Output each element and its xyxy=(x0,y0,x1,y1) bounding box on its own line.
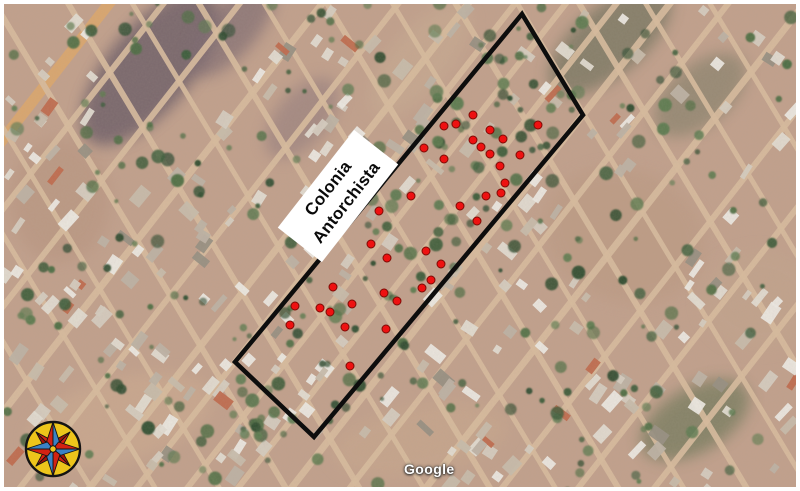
marker-dot xyxy=(326,308,334,316)
map-figure: Colonia Antorchista Google xyxy=(0,0,800,491)
marker-dot xyxy=(456,202,464,210)
google-attribution: Google xyxy=(404,461,455,477)
marker-dot xyxy=(486,150,494,158)
marker-dot xyxy=(534,121,542,129)
marker-dot xyxy=(382,325,390,333)
marker-dot xyxy=(375,207,383,215)
marker-dot xyxy=(420,144,428,152)
marker-dot xyxy=(477,143,485,151)
marker-dot xyxy=(497,189,505,197)
marker-dot xyxy=(422,247,430,255)
satellite-imagery xyxy=(4,4,796,487)
marker-dot xyxy=(407,192,415,200)
marker-dot xyxy=(380,289,388,297)
marker-dot xyxy=(348,300,356,308)
marker-dot xyxy=(316,304,324,312)
marker-dot xyxy=(486,126,494,134)
marker-dot xyxy=(501,179,509,187)
marker-dot xyxy=(427,276,435,284)
marker-dot xyxy=(452,120,460,128)
marker-dot xyxy=(440,122,448,130)
marker-dot xyxy=(469,136,477,144)
marker-dot xyxy=(499,135,507,143)
marker-dot xyxy=(473,217,481,225)
marker-dot xyxy=(286,321,294,329)
marker-dot xyxy=(482,192,490,200)
marker-dot xyxy=(291,302,299,310)
marker-dot xyxy=(393,297,401,305)
marker-dot xyxy=(516,151,524,159)
marker-dot xyxy=(469,111,477,119)
marker-dot xyxy=(346,362,354,370)
terrain-layer xyxy=(4,4,796,487)
marker-dot xyxy=(383,254,391,262)
marker-dot xyxy=(367,240,375,248)
marker-dot xyxy=(329,283,337,291)
marker-dot xyxy=(496,162,504,170)
marker-dot xyxy=(437,260,445,268)
marker-dot xyxy=(418,284,426,292)
marker-dot xyxy=(341,323,349,331)
compass-rose-icon xyxy=(19,415,87,483)
marker-dot xyxy=(440,155,448,163)
